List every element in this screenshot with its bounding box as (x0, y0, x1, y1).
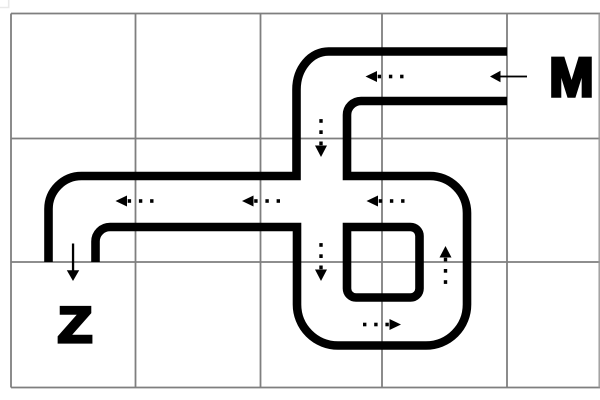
svg-text:Z: Z (58, 298, 93, 353)
svg-text:M: M (549, 47, 593, 108)
